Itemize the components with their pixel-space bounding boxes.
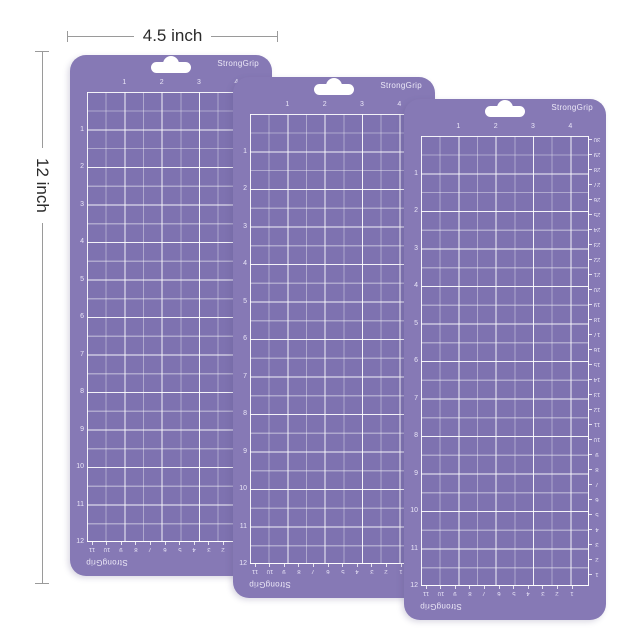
ruler-number-left: 4 [233, 260, 247, 268]
ruler-number-left: 10 [70, 463, 84, 471]
cutting-grid [250, 114, 418, 564]
ruler-number-left: 11 [70, 501, 84, 509]
hanger-hole-notch [497, 100, 513, 116]
hanger-hole-notch [163, 56, 179, 72]
ruler-number-left: 9 [70, 426, 84, 434]
ruler-number-right: 14 [591, 375, 603, 382]
ruler-number-left: 4 [404, 282, 418, 290]
ruler-number-bottom: 4 [351, 567, 363, 574]
ruler-number-right: 1 [591, 570, 603, 577]
brand-label-bottom: StrongGrip [86, 557, 128, 567]
hanger-hole-notch [326, 78, 342, 94]
ruler-number-top: 4 [392, 101, 406, 109]
ruler-number-bottom: 7 [478, 589, 490, 596]
ruler-number-right: 30 [591, 135, 603, 142]
ruler-number-left: 9 [233, 448, 247, 456]
ruler-number-right: 4 [591, 525, 603, 532]
ruler-number-left: 8 [404, 432, 418, 440]
ruler-number-top: 1 [117, 79, 131, 87]
ruler-number-left: 7 [404, 395, 418, 403]
ruler-number-left: 6 [70, 313, 84, 321]
ruler-number-right: 2 [591, 555, 603, 562]
ruler-number-left: 7 [233, 373, 247, 381]
ruler-number-left: 5 [70, 276, 84, 284]
ruler-number-top: 1 [280, 101, 294, 109]
ruler-number-top: 3 [526, 123, 540, 131]
ruler-number-left: 12 [233, 560, 247, 568]
ruler-number-right: 24 [591, 225, 603, 232]
ruler-number-bottom: 10 [101, 545, 113, 552]
ruler-number-right: 19 [591, 300, 603, 307]
ruler-number-left: 2 [70, 163, 84, 171]
ruler-number-right: 13 [591, 390, 603, 397]
ruler-number-top: 3 [192, 79, 206, 87]
ruler-number-bottom: 10 [264, 567, 276, 574]
ruler-number-left: 11 [233, 523, 247, 531]
ruler-number-bottom: 3 [366, 567, 378, 574]
ruler-number-left: 10 [404, 507, 418, 515]
ruler-number-right: 5 [591, 510, 603, 517]
ruler-number-right: 26 [591, 195, 603, 202]
ruler-number-top: 2 [489, 123, 503, 131]
brand-label-bottom: StrongGrip [420, 601, 462, 611]
ruler-number-left: 6 [404, 357, 418, 365]
ruler-number-top: 1 [451, 123, 465, 131]
ruler-number-bottom: 8 [293, 567, 305, 574]
ruler-number-left: 8 [233, 410, 247, 418]
ruler-number-right: 9 [591, 450, 603, 457]
height-dimension-label: 12 inch [32, 148, 52, 223]
ruler-number-left: 3 [404, 245, 418, 253]
ruler-number-left: 1 [70, 126, 84, 134]
ruler-number-left: 1 [233, 148, 247, 156]
width-dimension: 4.5 inch [67, 27, 278, 45]
ruler-number-left: 2 [404, 207, 418, 215]
cutting-mat-3: StrongGrip StrongGrip 123412345678910111… [404, 99, 606, 620]
ruler-number-bottom: 11 [420, 589, 432, 596]
ruler-number-left: 4 [70, 238, 84, 246]
ruler-number-right: 28 [591, 165, 603, 172]
brand-label-top: StrongGrip [551, 103, 593, 113]
ruler-number-bottom: 2 [551, 589, 563, 596]
ruler-number-right: 11 [591, 420, 603, 427]
ruler-number-bottom: 5 [508, 589, 520, 596]
dimension-line [68, 36, 134, 37]
ruler-number-left: 8 [70, 388, 84, 396]
ruler-number-right: 25 [591, 210, 603, 217]
ruler-number-bottom: 5 [174, 545, 186, 552]
product-image: 4.5 inch 12 inch StrongGrip StrongGrip 1… [0, 0, 640, 640]
ruler-number-bottom: 8 [130, 545, 142, 552]
cutting-grid [421, 136, 589, 586]
ruler-number-right: 18 [591, 315, 603, 322]
ruler-number-left: 10 [233, 485, 247, 493]
ruler-number-right: 15 [591, 360, 603, 367]
ruler-number-top: 2 [318, 101, 332, 109]
brand-label-bottom: StrongGrip [249, 579, 291, 589]
cutting-grid [87, 92, 255, 542]
ruler-number-left: 6 [233, 335, 247, 343]
ruler-number-right: 22 [591, 255, 603, 262]
ruler-number-bottom: 11 [86, 545, 98, 552]
ruler-number-bottom: 11 [249, 567, 261, 574]
dimension-end-tick [277, 31, 278, 42]
ruler-number-bottom: 1 [566, 589, 578, 596]
dimension-line [42, 223, 43, 583]
ruler-number-bottom: 9 [278, 567, 290, 574]
ruler-number-bottom: 2 [380, 567, 392, 574]
ruler-number-bottom: 4 [522, 589, 534, 596]
ruler-number-top: 4 [563, 123, 577, 131]
height-dimension: 12 inch [31, 51, 53, 584]
ruler-number-right: 8 [591, 465, 603, 472]
ruler-number-right: 7 [591, 480, 603, 487]
ruler-number-left: 9 [404, 470, 418, 478]
ruler-number-left: 11 [404, 545, 418, 553]
ruler-number-top: 2 [155, 79, 169, 87]
width-dimension-label: 4.5 inch [134, 26, 212, 46]
brand-label-top: StrongGrip [217, 59, 259, 69]
ruler-number-bottom: 5 [337, 567, 349, 574]
ruler-number-bottom: 7 [307, 567, 319, 574]
ruler-number-left: 12 [70, 538, 84, 546]
ruler-number-left: 7 [70, 351, 84, 359]
ruler-number-right: 20 [591, 285, 603, 292]
ruler-number-right: 12 [591, 405, 603, 412]
ruler-number-bottom: 6 [159, 545, 171, 552]
ruler-number-top: 3 [355, 101, 369, 109]
ruler-number-left: 5 [233, 298, 247, 306]
dimension-end-tick [35, 583, 49, 584]
ruler-number-bottom: 2 [217, 545, 229, 552]
ruler-number-right: 29 [591, 150, 603, 157]
ruler-number-bottom: 7 [144, 545, 156, 552]
dimension-line [211, 36, 277, 37]
ruler-number-bottom: 6 [322, 567, 334, 574]
ruler-number-left: 3 [233, 223, 247, 231]
ruler-number-left: 3 [70, 201, 84, 209]
ruler-number-left: 12 [404, 582, 418, 590]
ruler-number-left: 5 [404, 320, 418, 328]
ruler-number-right: 21 [591, 270, 603, 277]
ruler-number-right: 16 [591, 345, 603, 352]
ruler-number-bottom: 10 [435, 589, 447, 596]
ruler-number-bottom: 4 [188, 545, 200, 552]
ruler-number-bottom: 9 [115, 545, 127, 552]
dimension-line [42, 52, 43, 148]
ruler-number-right: 3 [591, 540, 603, 547]
ruler-number-bottom: 6 [493, 589, 505, 596]
ruler-number-left: 1 [404, 170, 418, 178]
ruler-number-right: 17 [591, 330, 603, 337]
ruler-number-bottom: 3 [203, 545, 215, 552]
ruler-number-right: 27 [591, 180, 603, 187]
ruler-number-right: 23 [591, 240, 603, 247]
ruler-number-bottom: 3 [537, 589, 549, 596]
ruler-number-bottom: 9 [449, 589, 461, 596]
brand-label-top: StrongGrip [380, 81, 422, 91]
ruler-number-bottom: 8 [464, 589, 476, 596]
ruler-number-left: 2 [233, 185, 247, 193]
ruler-number-right: 10 [591, 435, 603, 442]
ruler-number-right: 6 [591, 495, 603, 502]
